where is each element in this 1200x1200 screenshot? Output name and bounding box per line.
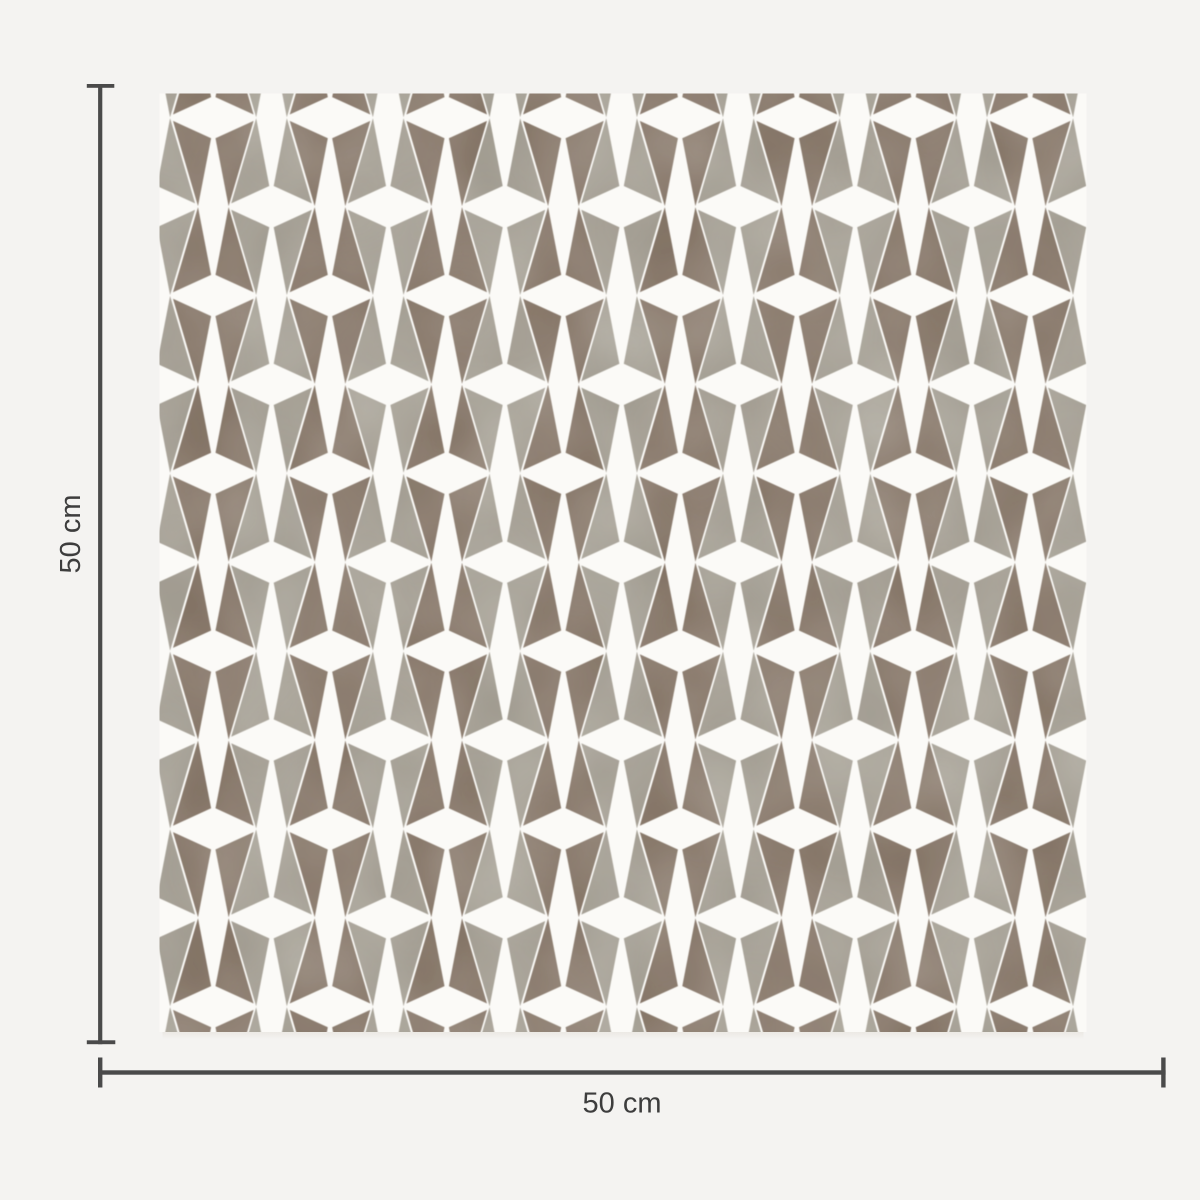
svg-text:50 cm: 50 cm [583, 1088, 662, 1120]
svg-text:50 cm: 50 cm [55, 495, 87, 574]
